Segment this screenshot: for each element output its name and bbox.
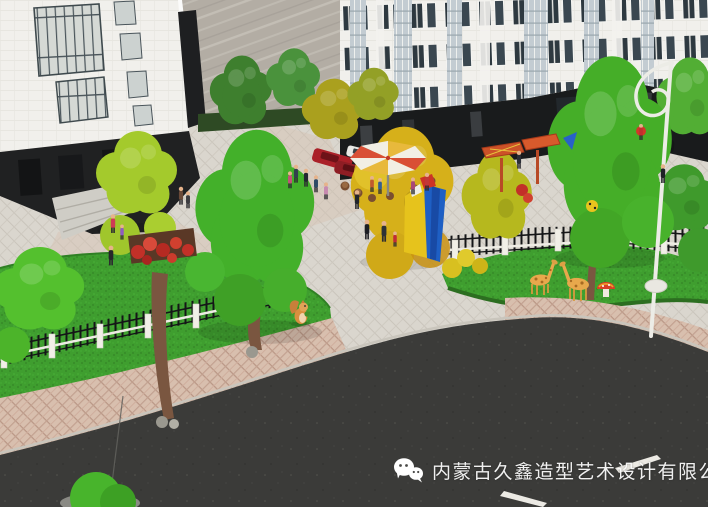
wechat-icon bbox=[393, 457, 425, 484]
apartment-building-left bbox=[0, 0, 200, 240]
model-photo: 内蒙古久鑫造型艺术设计有限公司 bbox=[0, 0, 708, 507]
ladybug-toy bbox=[586, 200, 598, 212]
watermark: 内蒙古久鑫造型艺术设计有限公司 bbox=[393, 457, 708, 484]
scale-model-scene bbox=[0, 0, 708, 507]
watermark-company-name: 内蒙古久鑫造型艺术设计有限公司 bbox=[432, 457, 708, 484]
white-stone bbox=[645, 280, 667, 293]
